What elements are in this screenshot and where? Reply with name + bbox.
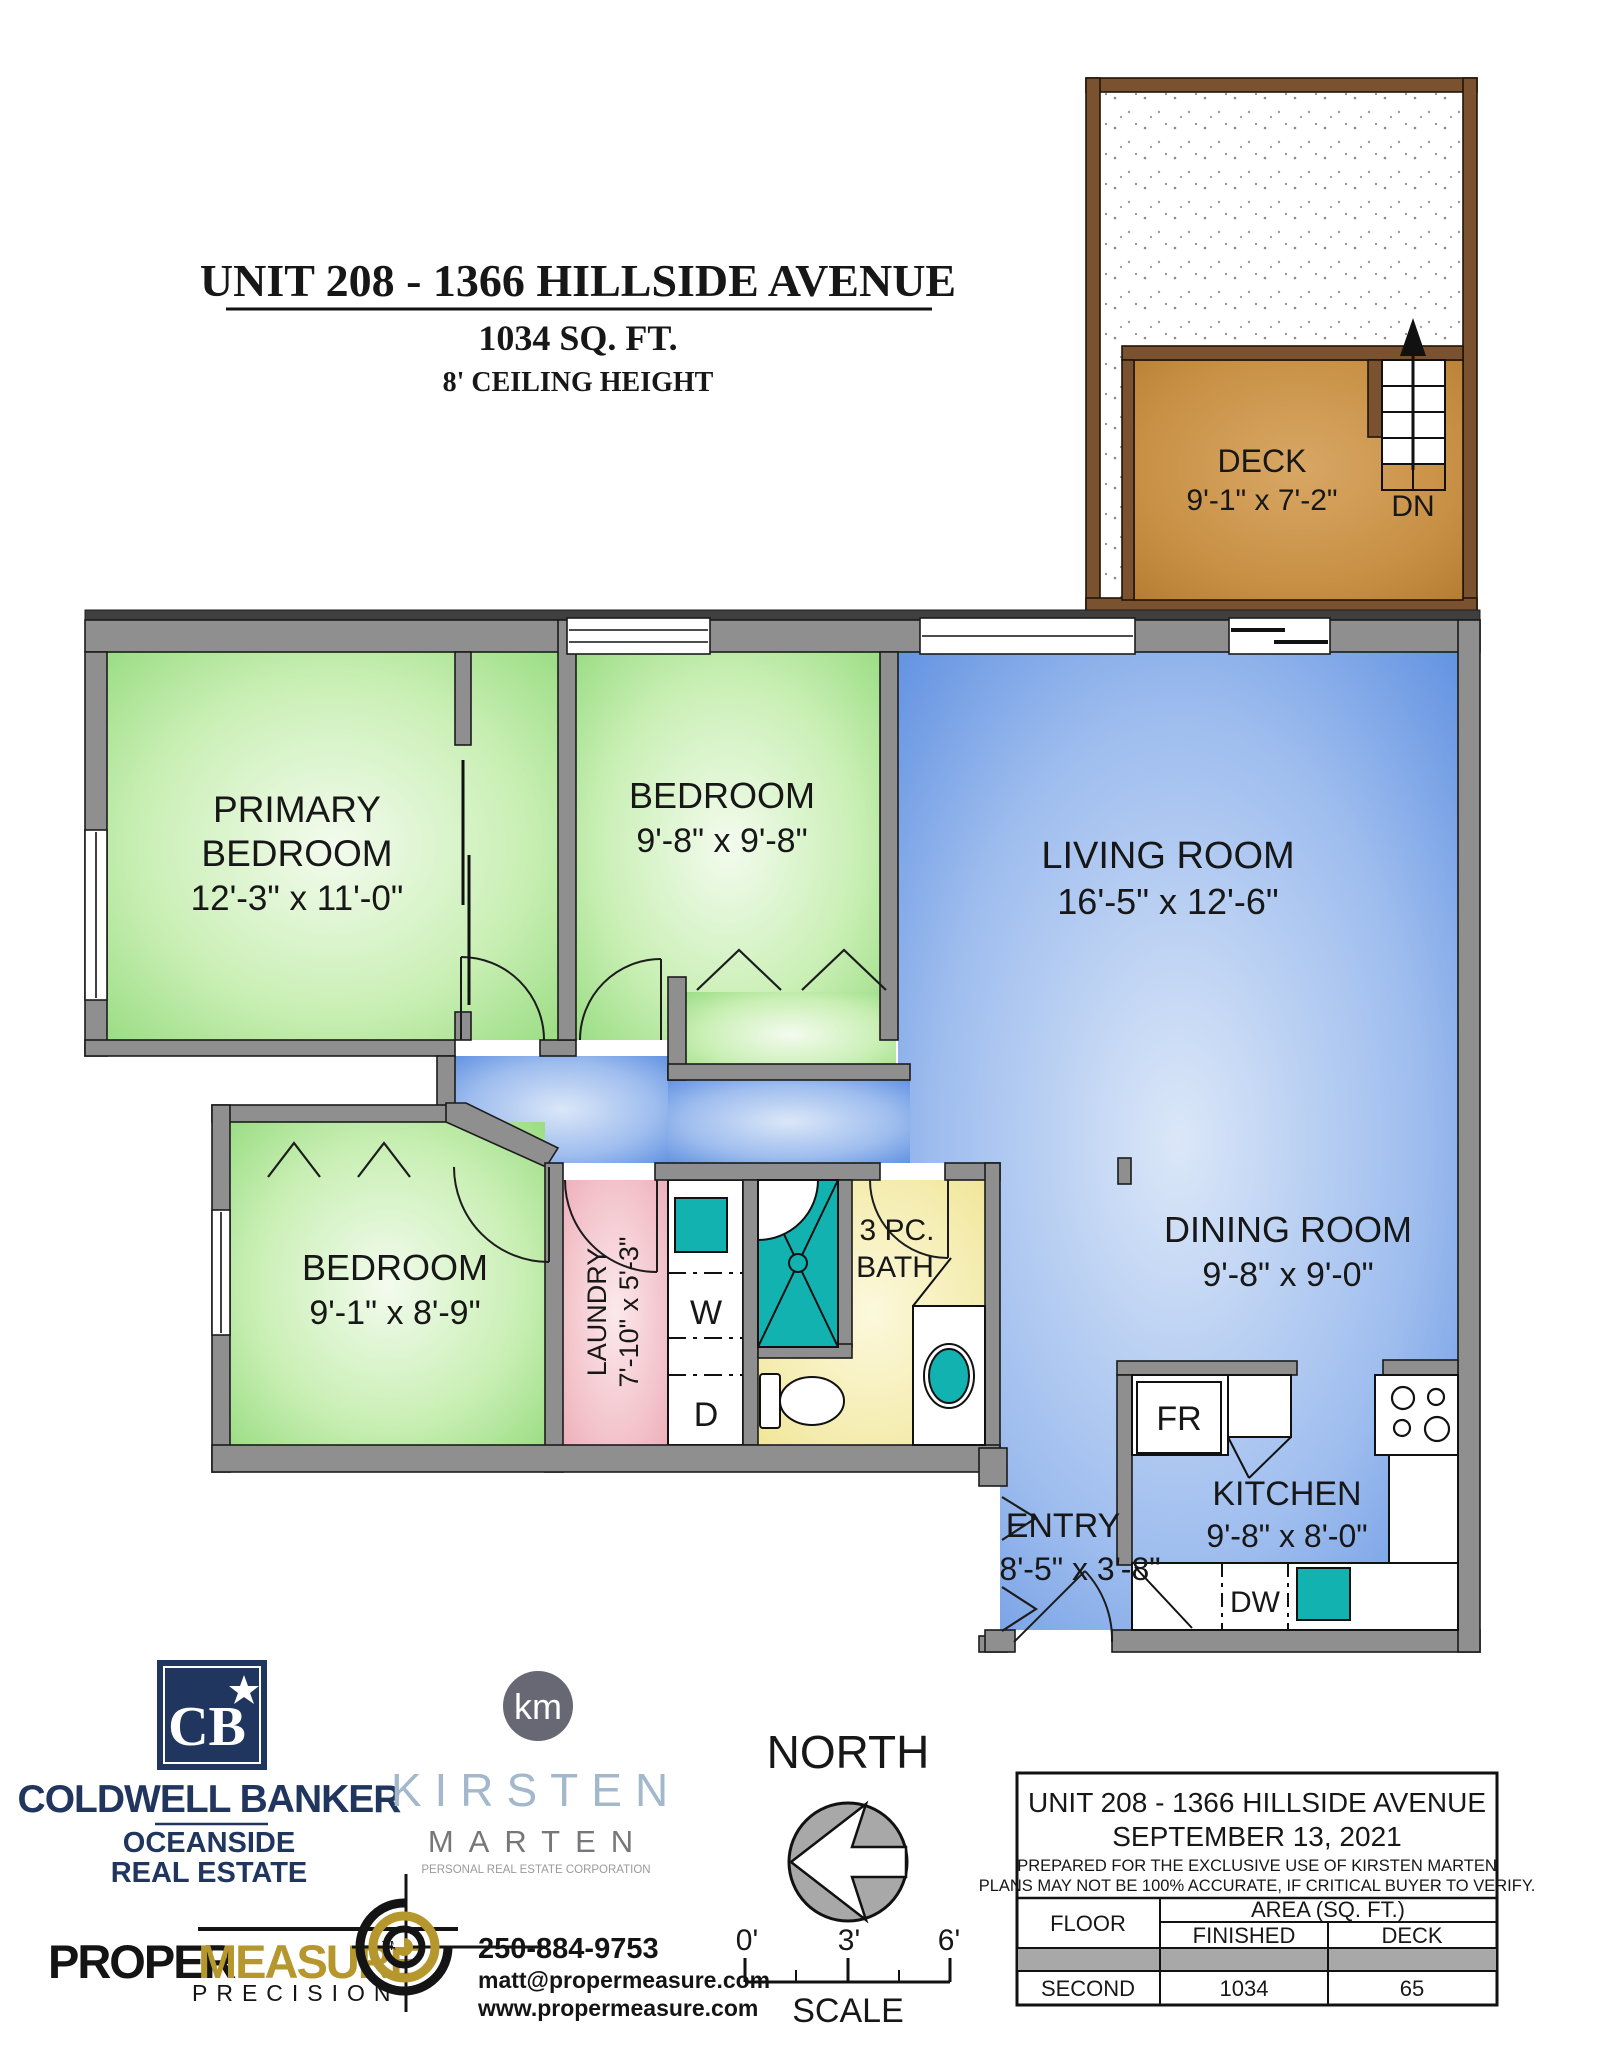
kitchen-counter-bottom: DW [1132,1563,1458,1630]
compass: NORTH [767,1726,930,1921]
info-title: UNIT 208 - 1366 HILLSIDE AVENUE [1028,1787,1486,1818]
col-area: AREA (SQ. FT.) [1251,1897,1405,1922]
bedroom3-label: BEDROOM [302,1247,488,1288]
coldwell-banker-name: COLDWELL BANKER [18,1778,402,1821]
dining-column [1118,1158,1131,1184]
stove [1375,1375,1458,1455]
col-finished: FINISHED [1193,1923,1296,1948]
propermeasure-logo: PROPER MEASURE TM PRECISION [48,1874,545,2012]
title-block: UNIT 208 - 1366 HILLSIDE AVENUE 1034 SQ.… [200,255,956,398]
cb-monogram: CB [168,1696,246,1758]
contact-block: 250-884-9753 matt@propermeasure.com www.… [477,1933,770,2021]
kitchen-label: KITCHEN [1212,1475,1361,1513]
col-floor: FLOOR [1050,1911,1126,1936]
deck-structure: DECK 9'-1" x 7'-2" DN [1086,78,1477,612]
primary-bedroom-dims: 12'-3" x 11'-0" [191,879,404,918]
window-bedroom2-top [567,618,710,654]
info-date: SEPTEMBER 13, 2021 [1112,1821,1401,1852]
kirsten-marten-logo: km KIRSTEN MARTEN PERSONAL REAL ESTATE C… [391,1671,681,1876]
scale-tick3-label: 3' [838,1924,860,1957]
scale-tick0-label: 0' [736,1924,758,1957]
deck-down-label: DN [1391,490,1434,523]
kirsten-first-name: KIRSTEN [391,1764,681,1816]
coldwell-banker-logo: CB COLDWELL BANKER OCEANSIDE REAL ESTATE [18,1660,402,1889]
window-bedroom3-left [212,1210,230,1335]
toilet [760,1374,844,1428]
kirsten-last-name: MARTEN [428,1824,648,1859]
laundry-label: LAUNDRY [582,1248,612,1377]
cell-deck: 65 [1400,1976,1424,2001]
contact-phone: 250-884-9753 [478,1933,659,1965]
bath-label2: BATH [856,1251,934,1284]
window-primary-left [85,830,107,1000]
primary-bedroom-label2: BEDROOM [201,833,392,874]
laundry-sink [675,1198,727,1252]
dryer-label: D [694,1396,719,1434]
living-room-dims: 16'-5" x 12'-6" [1057,881,1278,922]
fridge: FR [1132,1375,1228,1455]
coldwell-sub2: REAL ESTATE [111,1857,308,1889]
page-area: 1034 SQ. FT. [478,318,677,358]
dining-room-label: DINING ROOM [1164,1209,1412,1250]
primary-bedroom-label1: PRIMARY [213,789,381,830]
bedroom2-label: BEDROOM [629,775,815,816]
bedroom2-dims: 9'-8" x 9'-8" [636,822,807,860]
bedroom3-dims: 9'-1" x 8'-9" [309,1294,480,1332]
entry-dims: 8'-5" x 3'-8" [999,1551,1160,1587]
deck-stair-wall [1368,360,1382,437]
contact-email: matt@propermeasure.com [478,1967,770,1993]
kitchen-sink [1297,1568,1350,1620]
dining-room-dims: 9'-8" x 9'-0" [1202,1256,1373,1294]
scale-tick6-label: 6' [938,1924,960,1957]
info-note1: PREPARED FOR THE EXCLUSIVE USE OF KIRSTE… [1017,1857,1497,1875]
deck-label: DECK [1218,443,1307,479]
kitchen-dims: 9'-8" x 8'-0" [1206,1518,1367,1554]
hallway-b [668,1080,910,1163]
bath-sink [929,1349,969,1403]
deck-frame-left [1086,78,1100,612]
fridge-label: FR [1156,1400,1201,1438]
deck-wall-left [1122,360,1134,600]
floor-plan-page: UNIT 208 - 1366 HILLSIDE AVENUE 1034 SQ.… [0,0,1600,2071]
window-living-top [920,618,1135,654]
laundry-dims: 7'-10" x 5'-3" [614,1236,644,1387]
dishwasher-label: DW [1230,1586,1281,1619]
table-separator-row [1018,1949,1496,1971]
north-label: NORTH [767,1726,930,1778]
cell-floor: SECOND [1041,1976,1135,2001]
living-room-label: LIVING ROOM [1041,835,1294,877]
deck-sliding-door [1229,618,1330,654]
km-monogram: km [514,1686,562,1727]
washer-label: W [690,1294,722,1332]
page-title: UNIT 208 - 1366 HILLSIDE AVENUE [200,255,956,306]
deck-frame-top [1086,78,1477,92]
contact-website: www.propermeasure.com [477,1995,758,2021]
cell-finished: 1034 [1220,1976,1269,2001]
entry-label: ENTRY [1006,1507,1121,1545]
scale-label: SCALE [792,1992,904,2030]
kitchen-counter-right [1389,1455,1458,1563]
kirsten-tagline: PERSONAL REAL ESTATE CORPORATION [421,1864,650,1876]
deck-dims: 9'-1" x 7'-2" [1186,484,1337,517]
info-note2: PLANS MAY NOT BE 100% ACCURATE, IF CRITI… [979,1877,1536,1895]
info-table: UNIT 208 - 1366 HILLSIDE AVENUE SEPTEMBE… [979,1773,1536,2005]
bath-label1: 3 PC. [859,1214,934,1247]
coldwell-sub1: OCEANSIDE [123,1827,295,1859]
page-ceiling: 8' CEILING HEIGHT [443,367,714,398]
propermeasure-tagline: PRECISION [192,1980,400,2006]
deck-frame-right [1463,78,1477,612]
col-deck: DECK [1381,1923,1442,1948]
shower [758,1180,838,1347]
